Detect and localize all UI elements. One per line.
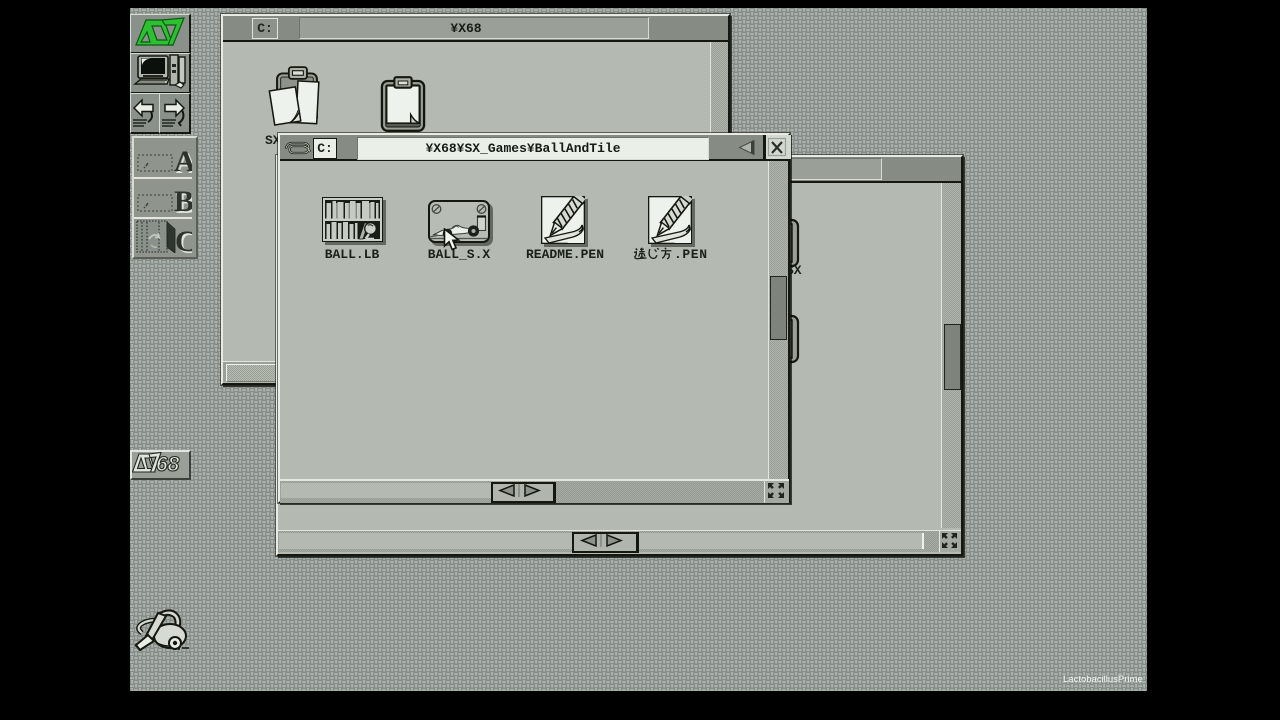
svg-text:C: C	[175, 225, 192, 253]
svg-text:B: B	[174, 185, 192, 216]
svg-text:68: 68	[156, 453, 180, 474]
svg-text:A: A	[174, 145, 192, 176]
